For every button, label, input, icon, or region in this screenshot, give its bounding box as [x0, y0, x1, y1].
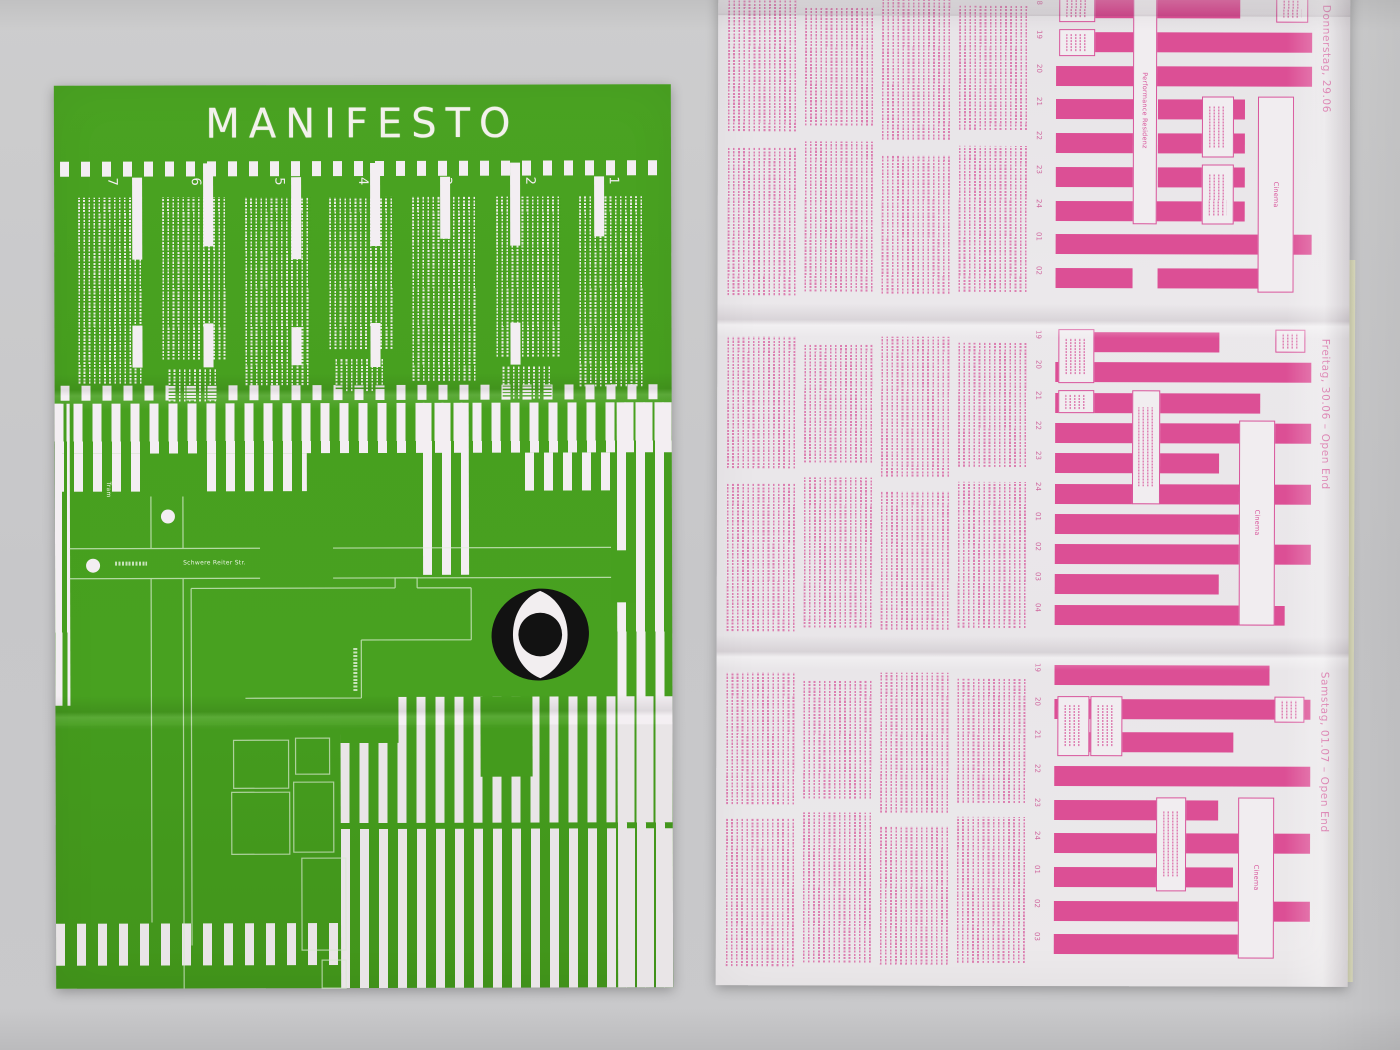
event-box: [1058, 329, 1094, 383]
band-date-label: Donnerstag, 29.06: [1320, 5, 1332, 113]
accent-bar: [291, 177, 301, 259]
event-label-microtext: [1209, 174, 1227, 215]
hour-label: 24: [1034, 482, 1041, 491]
program-paragraph-microtext: [958, 482, 1026, 628]
hour-label: 21: [1035, 97, 1042, 106]
event-label-microtext: [1066, 394, 1086, 409]
program-paragraph-microtext: [727, 147, 795, 295]
accent-bar: [510, 163, 520, 246]
accent-bar: [594, 176, 604, 236]
program-paragraph-microtext: [959, 6, 1027, 130]
green-poster-decor: 7654321: [54, 84, 671, 86]
program-paragraph-microtext: [805, 7, 873, 125]
pink-program-poster: 181920212223240102Performance ResidenzCi…: [716, 0, 1351, 987]
accent-bar: [510, 323, 520, 365]
map-dot-tram-stop: [161, 509, 175, 523]
program-paragraph-microtext: [804, 344, 872, 462]
schedule-bar: [1056, 268, 1133, 288]
hour-label: 23: [1033, 798, 1040, 807]
event-label-microtext: [1064, 706, 1082, 747]
schedule-bar: [1055, 514, 1260, 535]
hour-label: 02: [1034, 542, 1041, 551]
hour-label: 22: [1034, 421, 1041, 430]
schedule-bar: [1054, 800, 1218, 820]
hour-label: 02: [1033, 899, 1040, 908]
event-label-microtext: [1067, 34, 1087, 51]
program-text-column: [957, 653, 1026, 986]
stripe-field: [55, 402, 672, 454]
program-paragraph-microtext: [726, 818, 794, 966]
program-text-column: [881, 320, 950, 653]
section-number: 6: [189, 177, 202, 185]
section-body-microtext: [502, 367, 552, 399]
program-text-column: [726, 652, 795, 985]
schedule-bar: [1066, 32, 1312, 53]
schedule-bar: [1054, 665, 1269, 686]
hour-label: 02: [1035, 266, 1042, 275]
hour-label: 21: [1033, 730, 1040, 739]
hour-label: 04: [1034, 603, 1041, 612]
hour-label: 01: [1033, 865, 1040, 874]
hour-label: 03: [1033, 932, 1040, 941]
program-paragraph-microtext: [957, 817, 1025, 963]
hour-label: 24: [1035, 199, 1042, 208]
program-text-column: [958, 320, 1027, 653]
schedule-band: 192021222324010203CinemaSamstag, 01.07 –…: [716, 652, 1349, 987]
event-box: [1090, 696, 1122, 756]
schedule-bar: [1054, 766, 1310, 787]
event-label-microtext: [1281, 701, 1298, 718]
hour-label: 19: [1034, 663, 1041, 672]
program-text-column: [727, 0, 796, 319]
manifesto-sections: 7654321: [70, 176, 656, 388]
hour-label: 01: [1034, 512, 1041, 521]
manifesto-section: 5: [237, 177, 321, 387]
program-paragraph-microtext: [726, 672, 794, 804]
hour-label: 22: [1033, 764, 1040, 773]
program-paragraph-microtext: [881, 492, 949, 630]
program-paragraph-microtext: [805, 141, 873, 291]
schedule-band: 181920212223240102Performance ResidenzCi…: [717, 0, 1350, 321]
program-paragraph-microtext: [803, 812, 871, 962]
section-number: 4: [356, 177, 369, 185]
event-box: [1058, 390, 1094, 413]
event-box: Cinema: [1258, 97, 1295, 293]
event-box: Cinema: [1239, 420, 1276, 625]
schedule-bar: [1055, 574, 1219, 594]
event-box: [1132, 390, 1160, 504]
poster-title: MANIFESTO: [54, 100, 671, 149]
program-paragraph-microtext: [728, 0, 796, 131]
accent-bar: [370, 323, 380, 367]
section-body-microtext: [162, 197, 228, 359]
program-paragraph-microtext: [958, 343, 1026, 467]
hour-label: 18: [1035, 0, 1042, 5]
program-paragraph-microtext: [727, 336, 795, 468]
accent-bar: [291, 327, 301, 365]
hour-label: 20: [1035, 64, 1042, 73]
program-text-column: [803, 652, 872, 985]
accent-bar: [132, 178, 142, 260]
street-name-vertical-microtext: [353, 647, 357, 691]
section-body-microtext: [329, 197, 395, 349]
band-date-label: Freitag, 30.06 – Open End: [1319, 339, 1331, 490]
manifesto-section: 2: [488, 176, 572, 386]
hour-label: 20: [1033, 697, 1040, 706]
stop-name-microtext: [115, 562, 147, 566]
event-box: [1156, 797, 1186, 891]
section-body-microtext: [496, 196, 562, 356]
program-text-column: [727, 319, 796, 652]
accent-bar: [132, 326, 142, 368]
program-paragraph-microtext: [803, 680, 871, 798]
program-paragraph-microtext: [882, 156, 950, 294]
tick-row: [60, 160, 665, 177]
event-label: Cinema: [1272, 182, 1280, 208]
event-box: [1059, 29, 1095, 56]
map-streets: [69, 495, 612, 988]
section-body-microtext: [168, 369, 218, 401]
event-label-microtext: [1067, 0, 1087, 17]
event-label: Cinema: [1252, 865, 1260, 891]
event-label: Performance Residenz: [1141, 72, 1149, 148]
accent-bar: [203, 323, 213, 367]
stripe-field: [525, 452, 617, 490]
event-label-microtext: [1283, 0, 1301, 17]
section-body-microtext: [580, 196, 646, 386]
program-text-column: [804, 0, 873, 320]
green-poster: MANIFESTO 7654321 Tram Schwere Reiter St…: [54, 84, 673, 989]
event-label-microtext: [1097, 706, 1115, 747]
manifesto-section: 4: [321, 177, 405, 387]
hour-label: 20: [1034, 360, 1041, 369]
event-box: [1059, 0, 1095, 22]
section-number: 1: [607, 176, 620, 184]
event-label-microtext: [1282, 334, 1299, 349]
section-number: 5: [272, 177, 285, 185]
program-paragraph-microtext: [957, 679, 1025, 803]
accent-bar: [203, 163, 213, 246]
program-text-column: [958, 0, 1027, 320]
program-paragraph-microtext: [804, 477, 872, 627]
hour-label: 03: [1034, 572, 1041, 581]
eye-logo: [488, 582, 592, 686]
program-paragraph-microtext: [882, 0, 950, 140]
event-label-microtext: [1209, 107, 1227, 148]
schedule-bar: [1054, 867, 1233, 887]
program-text-column: [881, 0, 950, 320]
event-label-microtext: [1138, 408, 1154, 487]
event-box: [1275, 696, 1305, 723]
accent-bar: [370, 163, 380, 246]
event-label: Cinema: [1253, 510, 1261, 536]
event-label-microtext: [1066, 338, 1086, 374]
program-paragraph-microtext: [881, 337, 949, 477]
schedule-band: 19202122232401020304CinemaFreitag, 30.06…: [717, 319, 1350, 654]
program-paragraph-microtext: [727, 483, 795, 631]
program-paragraph-microtext: [880, 827, 948, 965]
event-label-microtext: [1163, 812, 1180, 876]
hour-label: 23: [1035, 165, 1042, 174]
program-paragraph-microtext: [880, 673, 948, 813]
event-box: [1202, 97, 1234, 158]
event-box: [1057, 696, 1089, 756]
program-paragraph-microtext: [959, 146, 1027, 292]
event-box: [1276, 0, 1308, 23]
section-number: 7: [105, 178, 118, 186]
event-box: [1276, 330, 1306, 353]
event-box: Cinema: [1238, 797, 1274, 958]
tram-label: Tram: [105, 482, 112, 498]
hour-label: 19: [1035, 30, 1042, 39]
band-date-label: Samstag, 01.07 – Open End: [1318, 672, 1330, 833]
hour-label: 24: [1033, 831, 1040, 840]
schedule-bar: [1054, 934, 1269, 955]
program-text-column: [804, 319, 873, 652]
manifesto-section: 6: [154, 177, 238, 387]
section-number: 2: [523, 177, 536, 185]
hour-label: 21: [1034, 391, 1041, 400]
event-box: Performance Residenz: [1132, 0, 1157, 225]
hour-label: 01: [1035, 232, 1042, 241]
program-text-column: [880, 653, 949, 986]
manifesto-section: 1: [572, 176, 656, 386]
hour-label: 22: [1035, 131, 1042, 140]
map-dot-venue: [86, 559, 100, 573]
hour-label: 19: [1034, 330, 1041, 339]
stripe-field: [207, 453, 307, 491]
hour-label: 23: [1034, 451, 1041, 460]
accent-bar: [440, 177, 450, 239]
schedule-bar: [1056, 66, 1312, 87]
event-box: [1202, 164, 1234, 225]
street-label: Schwere Reiter Str.: [183, 559, 246, 566]
photo-backdrop: MANIFESTO 7654321 Tram Schwere Reiter St…: [0, 0, 1400, 1050]
